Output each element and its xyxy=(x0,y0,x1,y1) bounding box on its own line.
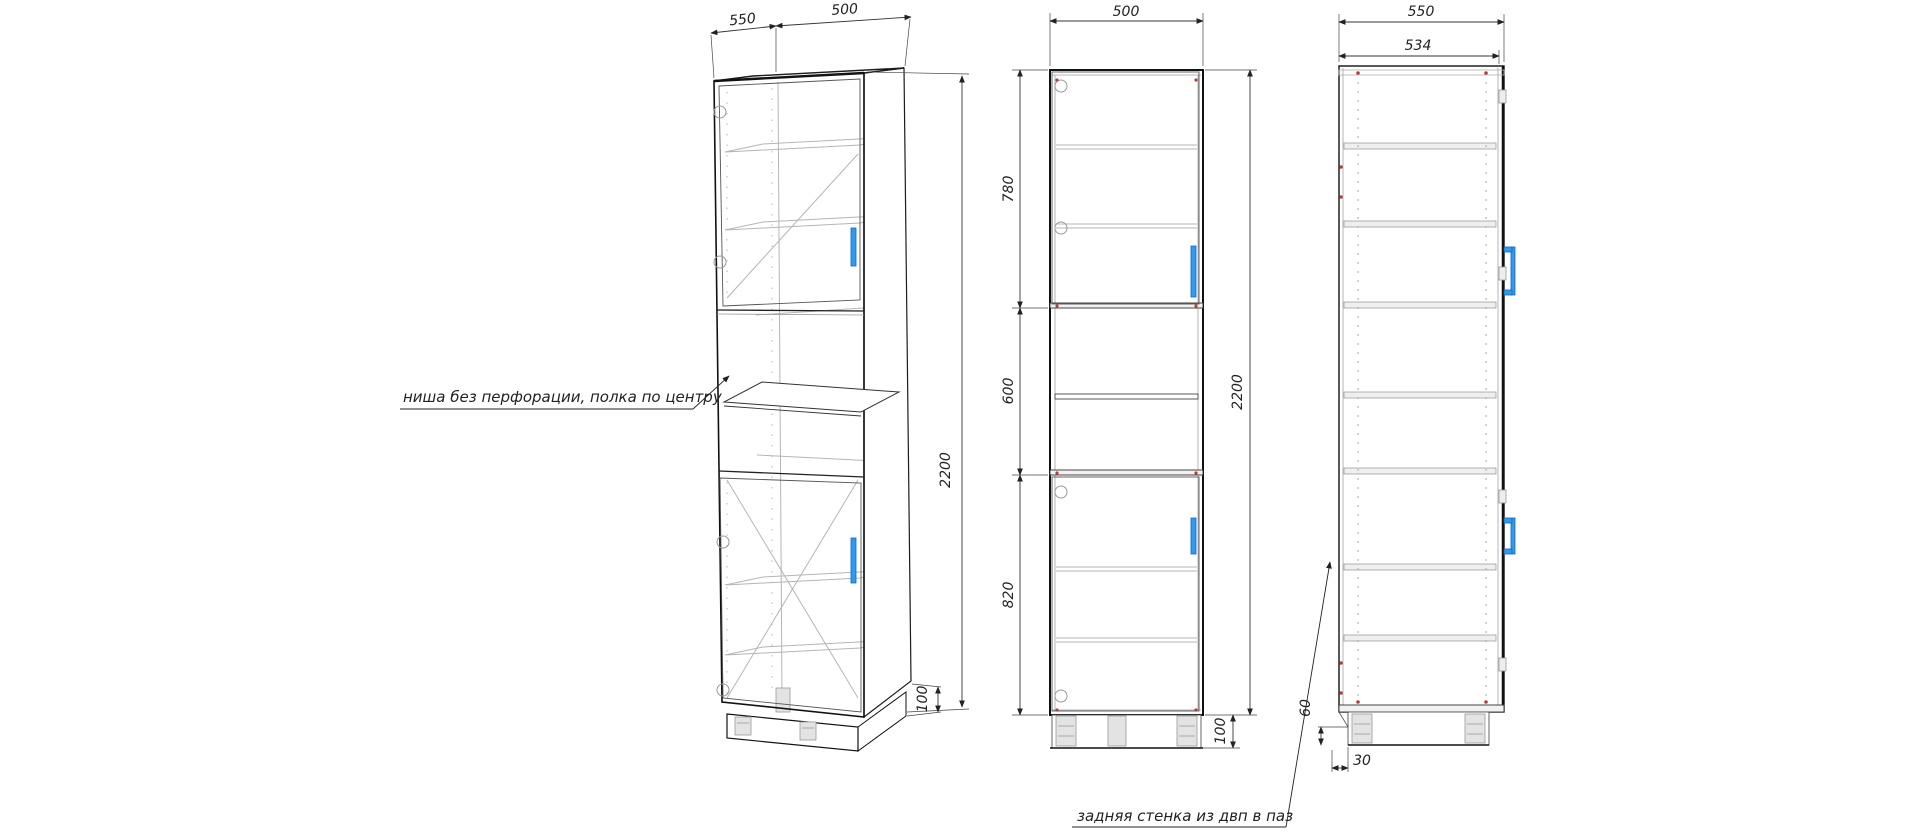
back-wall-note-text: задняя стенка из двп в паз xyxy=(1077,807,1293,825)
niche-note-text: ниша без перфорации, полка по центру xyxy=(403,388,723,406)
front-plinth-dim: 100 xyxy=(1213,718,1229,745)
side-back-offset-dim: 30 xyxy=(1353,753,1371,769)
front-middle-section-dim: 600 xyxy=(1001,378,1017,405)
front-bottom-section-dim: 820 xyxy=(1001,582,1017,609)
side-bottom-panel xyxy=(1339,705,1504,712)
iso-lower-door xyxy=(720,478,861,712)
front-lower-door-handle-icon xyxy=(1191,518,1196,554)
side-lower-door-handle-icon xyxy=(1504,518,1515,554)
annotation-niche: ниша без перфорации, полка по центру xyxy=(400,376,729,409)
front-height-dim: 2200 xyxy=(1230,374,1246,410)
front-plinth xyxy=(1050,715,1203,748)
front-niche-shelf xyxy=(1055,394,1198,399)
iso-upper-door xyxy=(719,79,860,306)
front-view: 500 780 600 820 2200 100 xyxy=(1001,4,1257,748)
front-divider-bottom xyxy=(1050,470,1203,475)
side-plinth xyxy=(1339,712,1489,745)
drawing-canvas: 550 500 2200 100 xyxy=(0,0,1920,834)
iso-lower-door-handle-icon xyxy=(851,538,856,583)
iso-plinth-dim: 100 xyxy=(915,686,931,713)
side-view: 550 534 60 30 xyxy=(1298,4,1515,772)
iso-height-dim: 2200 xyxy=(938,452,954,488)
iso-depth-dim: 550 xyxy=(728,11,756,30)
front-upper-door-handle-icon xyxy=(1191,246,1196,297)
side-inner-depth-dim: 534 xyxy=(1405,38,1432,54)
front-top-section-dim: 780 xyxy=(1001,176,1017,203)
iso-upper-door-handle-icon xyxy=(851,228,856,266)
isometric-view: 550 500 2200 100 xyxy=(711,1,969,751)
iso-dimensions: 550 500 2200 100 xyxy=(711,1,969,716)
front-width-dim: 500 xyxy=(1113,4,1140,20)
side-depth-dim: 550 xyxy=(1408,4,1435,20)
iso-width-dim: 500 xyxy=(831,1,859,19)
